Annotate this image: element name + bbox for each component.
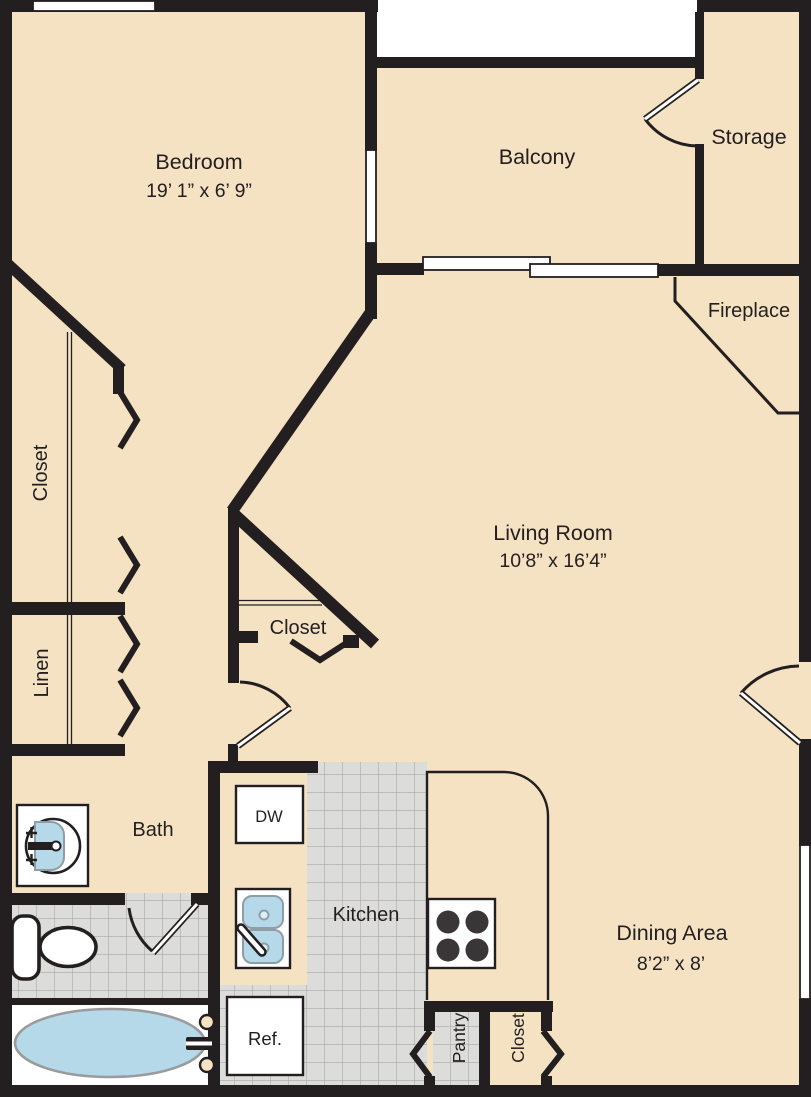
- stove-icon: [428, 899, 495, 968]
- bedroom-top-window: [33, 1, 155, 11]
- refrigerator-label: Ref.: [248, 1028, 282, 1049]
- closet-center-label: Closet: [270, 617, 327, 639]
- balcony-label: Balcony: [499, 145, 576, 169]
- bedroom-dims: 19’ 1” x 6’ 9”: [146, 180, 252, 202]
- bath-label: Bath: [132, 819, 173, 841]
- bedroom-side-window: [366, 150, 376, 243]
- fireplace-label: Fireplace: [708, 300, 790, 322]
- pantry-label: Pantry: [449, 1012, 469, 1063]
- linen-label: Linen: [31, 649, 53, 698]
- kitchen-tile-floor: [307, 762, 427, 1003]
- floor-plan-svg: Bedroom 19’ 1” x 6’ 9” Balcony Storage F…: [0, 0, 811, 1097]
- vanity-sink-icon: [17, 805, 88, 886]
- bedroom-label: Bedroom: [155, 150, 242, 174]
- storage-label: Storage: [711, 125, 786, 149]
- floor-plan-page: Bedroom 19’ 1” x 6’ 9” Balcony Storage F…: [0, 0, 811, 1097]
- closet-bottom-label: Closet: [508, 1013, 528, 1063]
- dining-area-dims: 8’2” x 8’: [637, 953, 705, 975]
- living-room-label: Living Room: [493, 521, 613, 545]
- closet-left-label: Closet: [30, 444, 52, 501]
- dining-area-label: Dining Area: [616, 921, 727, 945]
- kitchen-sink-icon: [236, 889, 290, 968]
- exterior-above-balcony: [377, 0, 697, 57]
- kitchen-label: Kitchen: [333, 904, 400, 926]
- dining-window: [800, 845, 810, 999]
- living-room-dims: 10’8” x 16’4”: [499, 550, 606, 572]
- dishwasher-label: DW: [255, 808, 283, 826]
